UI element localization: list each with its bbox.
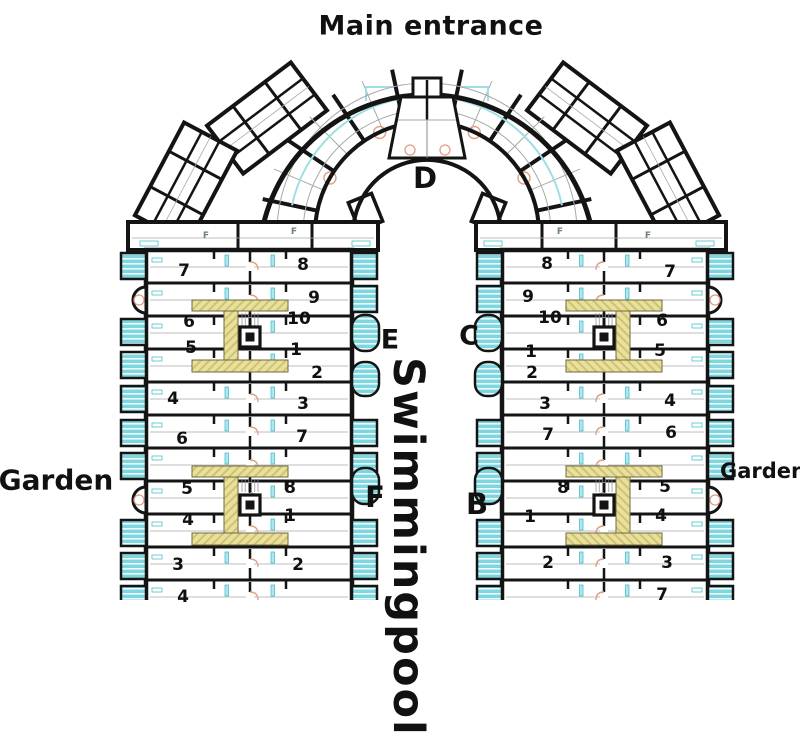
unit-number: 5	[654, 341, 666, 361]
unit-number: 9	[522, 287, 534, 307]
unit-number: 6	[656, 311, 668, 331]
floorplan-page: Main entrance D E C F B Garden Garden Sw…	[0, 0, 800, 600]
unit-number: 8	[541, 254, 553, 274]
unit-number: 4	[664, 391, 676, 411]
unit-number: 1	[525, 342, 537, 362]
unit-number: 7	[542, 425, 554, 445]
unit-number: 10	[538, 308, 562, 328]
unit-number: 6	[665, 423, 677, 443]
unit-number: 5	[659, 477, 671, 497]
unit-number: 2	[526, 363, 538, 383]
right-wing-units: 87910615234768514237	[0, 0, 800, 600]
unit-number: 7	[656, 585, 668, 605]
unit-number: 1	[524, 507, 536, 527]
unit-number: 3	[661, 553, 673, 573]
unit-number: 2	[542, 553, 554, 573]
unit-number: 3	[539, 394, 551, 414]
unit-number: 8	[557, 478, 569, 498]
unit-number: 7	[664, 262, 676, 282]
unit-number: 4	[655, 506, 667, 526]
